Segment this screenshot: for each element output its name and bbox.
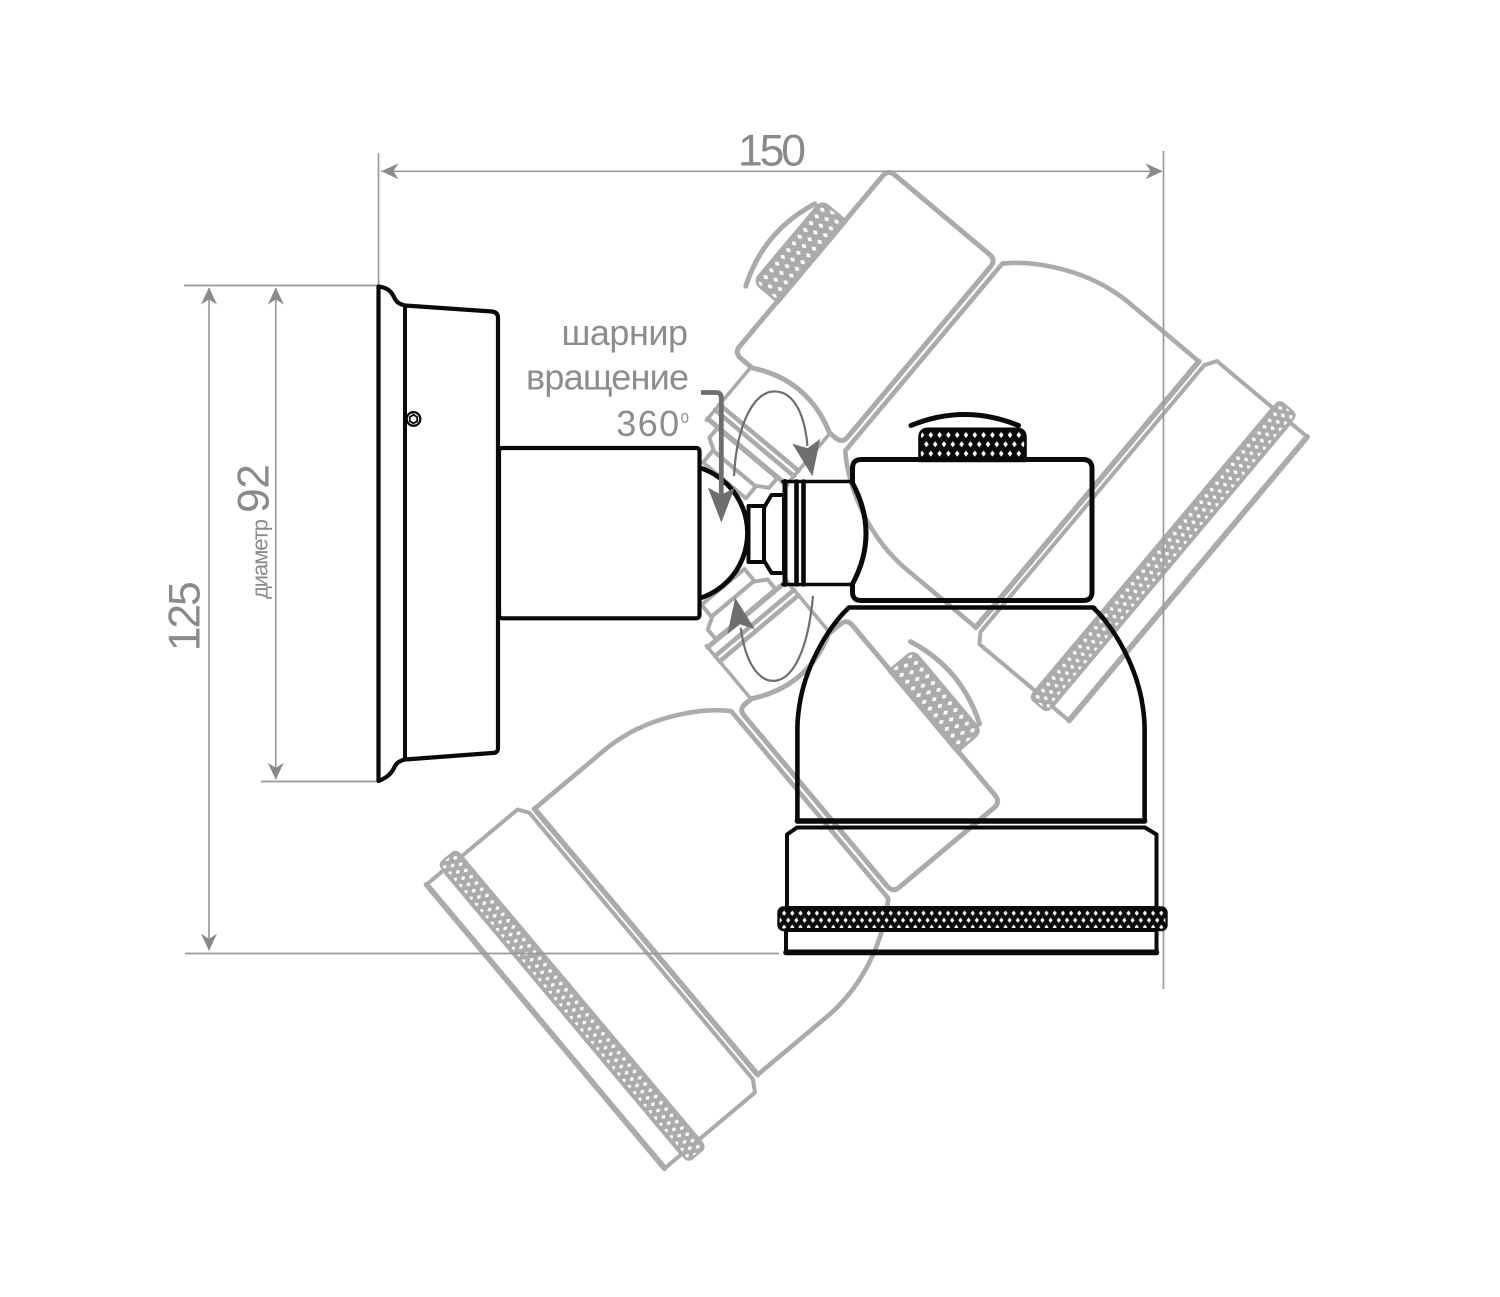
- svg-text:150: 150: [738, 127, 806, 176]
- svg-text:125: 125: [160, 581, 209, 651]
- svg-text:диаметр: диаметр: [248, 519, 273, 599]
- svg-text:3600: 3600: [616, 403, 689, 444]
- svg-text:шарнир: шарнир: [562, 312, 689, 353]
- svg-text:вращение: вращение: [526, 357, 689, 398]
- svg-text:92: 92: [230, 464, 279, 513]
